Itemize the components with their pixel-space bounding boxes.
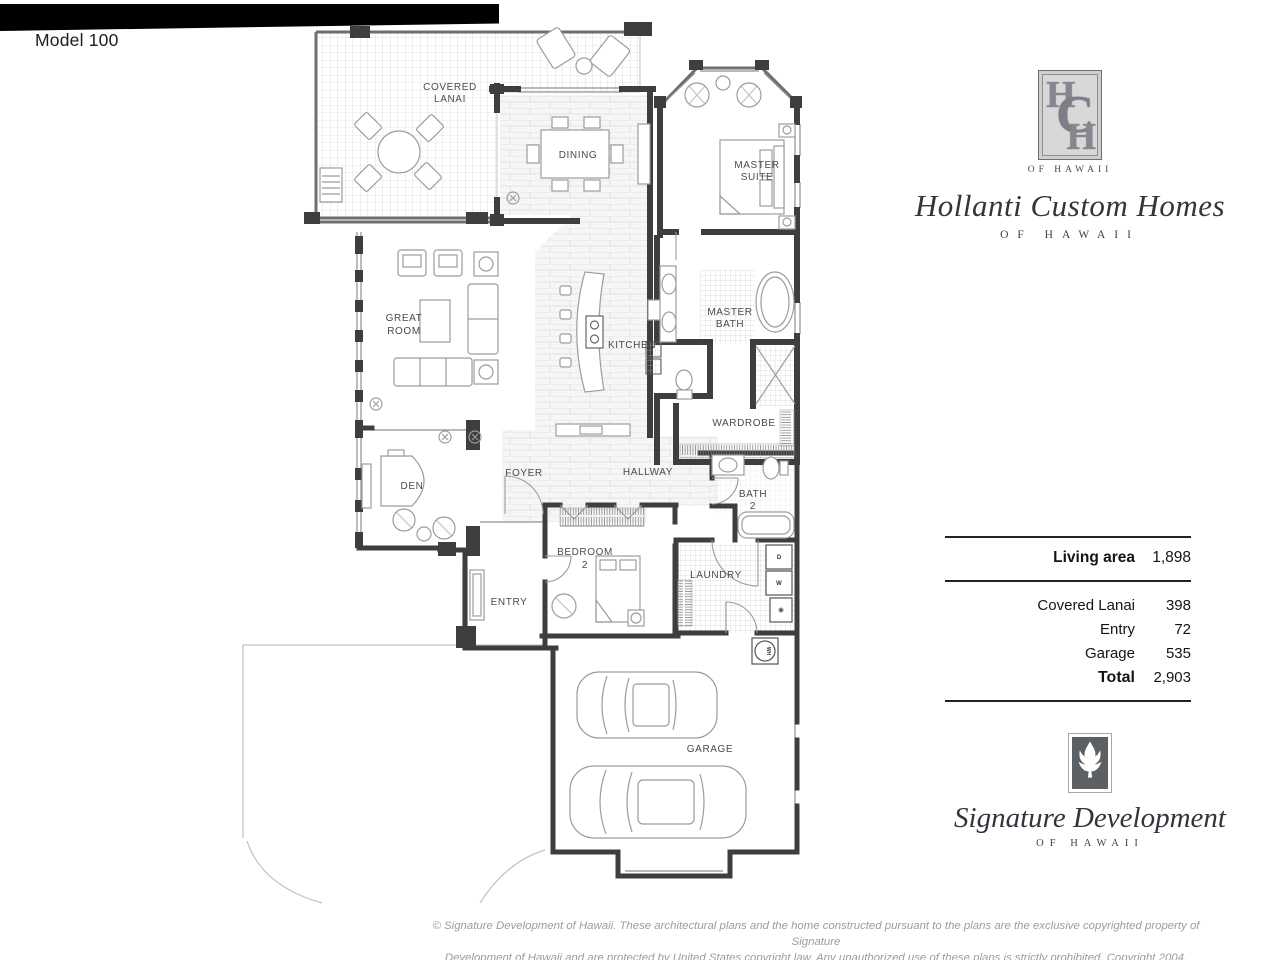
svg-text:ROOM: ROOM [387, 326, 421, 337]
living-area-label: Living area [945, 549, 1135, 567]
svg-text:2: 2 [750, 501, 756, 512]
buffet [638, 124, 650, 184]
car-2 [570, 766, 746, 838]
builder-brand: H C H OF HAWAII Hollanti Custom Homes OF… [905, 70, 1235, 241]
monogram-caption: OF HAWAII [905, 165, 1235, 175]
table-row: Covered Lanai 398 [945, 594, 1191, 618]
label-entry: ENTRY [491, 597, 528, 608]
label-bedroom-2: BEDROOM [557, 547, 613, 558]
builder-name: Hollanti Custom Homes [905, 188, 1235, 224]
label-bath-2: BATH [739, 489, 767, 500]
driveway-outline [243, 645, 545, 903]
label-garage: GARAGE [687, 744, 733, 755]
label-great-room: GREAT [386, 313, 423, 324]
copyright-line-1: © Signature Development of Hawaii. These… [430, 918, 1202, 950]
monogram-letter-h2: H [1066, 118, 1096, 156]
leaf-icon [1075, 737, 1105, 783]
table-row: Garage 535 [945, 642, 1191, 666]
developer-brand: Signature Development OF HAWAII [935, 734, 1245, 849]
label-foyer: FOYER [505, 468, 542, 479]
car-1 [577, 672, 717, 738]
furniture [320, 27, 795, 838]
label-dining: DINING [559, 150, 598, 161]
hch-monogram-logo: H C H [1038, 70, 1102, 160]
floor-plan-sheet: Model 100 [0, 0, 1280, 960]
label-covered-lanai: COVERED [423, 82, 477, 93]
svg-text:2: 2 [582, 560, 588, 571]
signature-leaf-logo [1069, 734, 1111, 792]
total-label: Total [945, 666, 1135, 690]
area-table: Living area 1,898 Covered Lanai 398 Entr… [945, 536, 1191, 702]
table-row: Entry 72 [945, 618, 1191, 642]
developer-name: Signature Development [935, 802, 1245, 835]
copyright-line-2: Development of Hawaii and are protected … [430, 950, 1202, 960]
label-master-suite: MASTER [734, 160, 779, 171]
water-heater [755, 641, 775, 661]
table-rule-bottom [945, 700, 1191, 702]
total-row: Total 2,903 [945, 666, 1191, 690]
living-area-row: Living area 1,898 [945, 538, 1191, 580]
lanai-table [378, 131, 420, 173]
dryer-label: D [777, 555, 782, 561]
developer-subtitle: OF HAWAII [935, 838, 1245, 849]
label-wardrobe: WARDROBE [712, 418, 775, 429]
label-laundry: LAUNDRY [690, 570, 742, 581]
washer-label: W [776, 581, 782, 587]
svg-text:BATH: BATH [716, 319, 744, 330]
total-value: 2,903 [1135, 666, 1191, 690]
svg-text:LANAI: LANAI [434, 94, 466, 105]
copyright-notice: © Signature Development of Hawaii. These… [430, 918, 1202, 960]
label-hallway: HALLWAY [623, 467, 673, 478]
grill [320, 168, 342, 202]
label-den: DEN [401, 481, 424, 492]
living-area-value: 1,898 [1135, 549, 1191, 567]
svg-text:SUITE: SUITE [741, 172, 773, 183]
builder-subtitle: OF HAWAII [905, 229, 1235, 241]
label-kitchen: KITCHEN [608, 340, 656, 351]
label-master-bath: MASTER [707, 307, 752, 318]
water-heater-label: WH [765, 647, 771, 656]
